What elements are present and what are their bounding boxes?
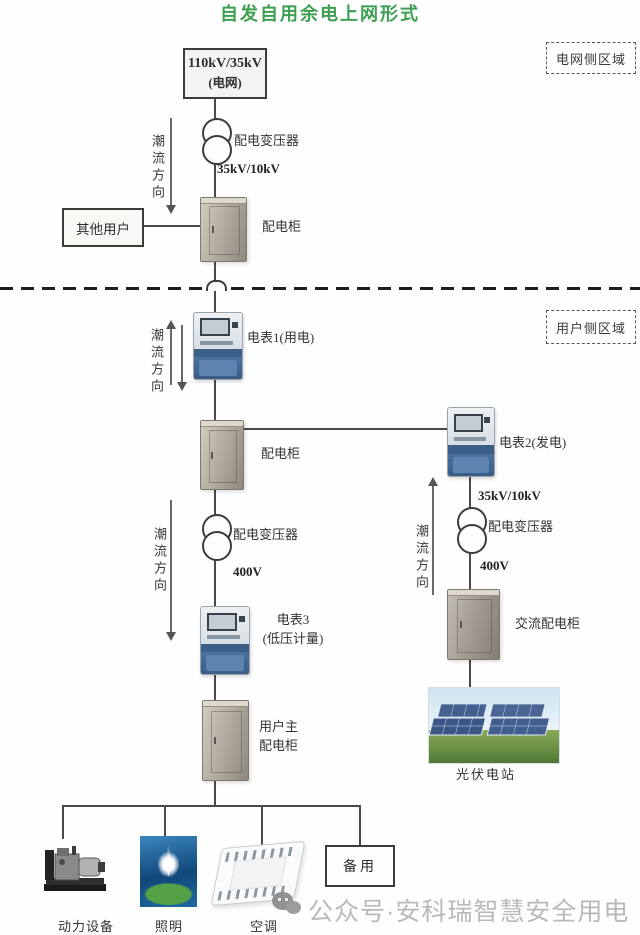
meter-button: [484, 417, 490, 423]
cabinet2-label: 配电柜: [261, 443, 300, 462]
pv-station-label: 光伏电站: [456, 764, 516, 783]
pv-branch-voltage-label: 35kV/10kV: [478, 488, 541, 504]
arrow-up-icon: [166, 320, 176, 329]
meter2-label: 电表2(发电): [499, 432, 566, 451]
meter-face: [194, 313, 242, 349]
wechat-icon: [272, 890, 304, 918]
meter-screen: [454, 414, 483, 432]
generator-image: [42, 838, 108, 894]
page-title: 自发自用余电上网形式: [0, 0, 640, 26]
meter1-label: 电表1(用电): [247, 327, 314, 346]
meter-face: [448, 408, 494, 445]
meter-base: [448, 454, 494, 476]
load-branch-line-4: [359, 805, 361, 845]
arrow-down-icon: [177, 382, 187, 391]
grid-source-box: 110kV/35kV (电网): [183, 48, 267, 99]
user-main-cabinet-label: 用户主 配电柜: [259, 718, 298, 756]
meter-base: [201, 652, 249, 674]
meter-button: [232, 322, 238, 328]
watermark-text: 公众号·安科瑞智慧安全用电: [308, 892, 629, 928]
flow-direction-label: 潮流方向: [148, 134, 167, 202]
cabinet-lid: [201, 421, 243, 427]
meter3-label: 电表3 (低压计量): [248, 611, 338, 649]
meter-base: [194, 357, 242, 379]
meter3-label-line1: 电表3: [248, 611, 338, 630]
load-bus-line: [63, 805, 361, 807]
transformer3-icon: [202, 531, 232, 561]
flow-direction-label: 潮流方向: [147, 328, 166, 396]
ac-cabinet-label: 交流配电柜: [515, 613, 580, 632]
line-crossing-arc: [206, 280, 227, 291]
light-beam: [167, 845, 170, 877]
spare-feeder-box: 备用: [325, 845, 395, 887]
load-label-air-conditioning: 空调: [250, 916, 278, 935]
user-main-cabinet-label-line1: 用户主: [259, 718, 298, 737]
region-label-user-side: 用户侧区域: [546, 310, 636, 344]
flow-arrow-up: [432, 485, 434, 595]
meter-band: [194, 349, 242, 357]
meter-band: [448, 445, 494, 453]
flow-arrow-down: [170, 118, 172, 206]
arrow-down-icon: [166, 205, 176, 214]
meter-terminal-bar: [454, 437, 486, 441]
ac-distribution-cabinet-image: [447, 589, 500, 660]
meter-cover: [453, 457, 490, 474]
cabinet-lid: [203, 701, 248, 707]
wechat-eye: [278, 898, 281, 901]
meter3-image: [200, 606, 250, 675]
transformer2-label: 配电变压器: [488, 516, 553, 535]
meter-screen: [200, 318, 230, 336]
load-label-lighting: 照明: [155, 916, 183, 935]
user-main-cabinet-label-line2: 配电柜: [259, 737, 298, 756]
load-label-power-equipment: 动力设备: [58, 916, 114, 935]
cabinet-door: [457, 599, 492, 653]
grid-user-divider-line: [0, 287, 640, 290]
cabinet1-label: 配电柜: [262, 216, 301, 235]
transformer1-voltage-label: 35kV/10kV: [217, 161, 280, 177]
flow-direction-label: 潮流方向: [150, 527, 169, 595]
diagram-canvas: 自发自用余电上网形式 电网侧区域 用户侧区域 110kV/35kV (电网) 配…: [0, 0, 640, 935]
transformer2-icon: [457, 524, 487, 554]
cabinet-handle: [212, 226, 214, 233]
grid-voltage-text: 110kV/35kV: [188, 56, 262, 72]
meter3-label-line2: (低压计量): [248, 630, 338, 649]
wechat-eye: [285, 898, 288, 901]
cabinet-handle: [460, 621, 462, 628]
flow-arrow-down: [181, 325, 183, 383]
transformer2-voltage-label: 400V: [480, 558, 509, 574]
cabinet-lid: [448, 590, 499, 596]
transformer3-label: 配电变压器: [233, 524, 298, 543]
cabinet-handle: [211, 452, 213, 459]
meter-button: [239, 616, 245, 622]
lighting-image: [140, 836, 197, 907]
arrow-down-icon: [166, 632, 176, 641]
meter-cover: [206, 655, 244, 671]
meter1-image: [193, 312, 243, 380]
load-branch-line-2: [164, 805, 166, 837]
flow-arrow-down: [170, 500, 172, 633]
wechat-bubble: [286, 901, 301, 914]
cabinet-lid: [201, 198, 246, 204]
load-branch-line-3: [261, 805, 263, 845]
pv-branch-connector-line: [244, 428, 470, 430]
transformer3-voltage-label: 400V: [233, 564, 262, 580]
load-branch-line-1: [62, 805, 64, 839]
meter-terminal-bar: [207, 635, 241, 639]
grid-name-text: (电网): [208, 72, 241, 91]
distribution-cabinet-image: [200, 197, 247, 262]
meter-screen: [207, 613, 237, 631]
region-label-grid-side: 电网侧区域: [546, 42, 636, 74]
user-main-cabinet-image: [202, 700, 249, 781]
flow-arrow-up: [170, 328, 172, 385]
meter2-image: [447, 407, 495, 477]
meter-terminal-bar: [200, 341, 234, 345]
other-users-box: 其他用户: [62, 208, 144, 247]
flow-direction-label: 潮流方向: [412, 524, 431, 592]
pv-station-image: [428, 687, 560, 764]
distribution-cabinet-image: [200, 420, 244, 490]
meter-band: [201, 644, 249, 652]
arrow-up-icon: [428, 477, 438, 486]
transformer1-label: 配电变压器: [234, 130, 299, 149]
meter-cover: [199, 360, 237, 376]
meter-face: [201, 607, 249, 644]
cabinet-handle: [214, 737, 216, 744]
